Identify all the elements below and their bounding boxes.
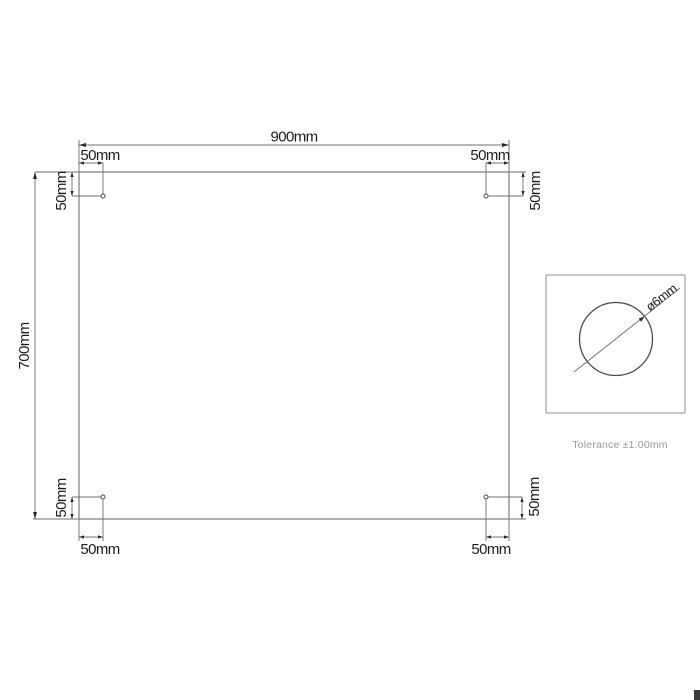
- hole-marker-top-right: [484, 194, 488, 198]
- tolerance-note: Tolerance ±1.00mm: [572, 439, 668, 451]
- offset-label-top-right-horizontal: 50mm: [470, 147, 509, 164]
- height-dimension-label: 700mm: [16, 322, 33, 369]
- offset-label-top-left-horizontal: 50mm: [80, 147, 119, 164]
- arrowhead-icon: [520, 514, 523, 519]
- offset-dimension-top-right: 50mm 50mm: [470, 147, 544, 211]
- offset-dimension-top-left: 50mm 50mm: [53, 147, 120, 211]
- width-dimension: 900mm: [79, 129, 509, 173]
- arrowhead-icon: [521, 191, 524, 196]
- arrowhead-icon: [70, 191, 73, 196]
- arrowhead-icon: [520, 497, 523, 502]
- panel-outline: [79, 172, 509, 519]
- width-dimension-label: 900mm: [270, 129, 317, 146]
- arrowhead-icon: [70, 514, 73, 519]
- offset-label-bottom-right-vertical: 50mm: [526, 477, 543, 516]
- dimension-drawing: 900mm 700mm 50mm 50mm 50mm 50mm: [0, 0, 700, 700]
- arrowhead-icon: [486, 535, 491, 538]
- hole-marker-bottom-right: [484, 495, 488, 499]
- hole-detail-view: ø6mm: [546, 275, 685, 413]
- offset-dimension-bottom-left: 50mm 50mm: [53, 478, 120, 558]
- hole-marker-top-left: [101, 194, 105, 198]
- technical-drawing-canvas: 900mm 700mm 50mm 50mm 50mm 50mm: [0, 0, 700, 700]
- offset-label-top-right-vertical: 50mm: [527, 171, 544, 210]
- offset-label-top-left-vertical: 50mm: [53, 171, 70, 210]
- corner-artifact: [694, 690, 700, 700]
- height-dimension: 700mm: [16, 172, 79, 519]
- arrowhead-icon: [33, 172, 37, 179]
- arrowhead-icon: [79, 535, 84, 538]
- arrowhead-icon: [70, 497, 73, 502]
- arrowhead-icon: [70, 172, 73, 177]
- offset-label-bottom-left-horizontal: 50mm: [80, 541, 119, 558]
- offset-dimension-bottom-right: 50mm 50mm: [471, 477, 543, 558]
- hole-marker-bottom-left: [101, 495, 105, 499]
- offset-label-bottom-right-horizontal: 50mm: [471, 541, 510, 558]
- arrowhead-icon: [98, 535, 103, 538]
- arrowhead-icon: [521, 172, 524, 177]
- arrowhead-icon: [33, 512, 37, 519]
- offset-label-bottom-left-vertical: 50mm: [53, 478, 70, 517]
- hole-diameter-label: ø6mm: [643, 281, 680, 315]
- arrowhead-icon: [504, 535, 509, 538]
- arrowhead-icon: [639, 316, 645, 321]
